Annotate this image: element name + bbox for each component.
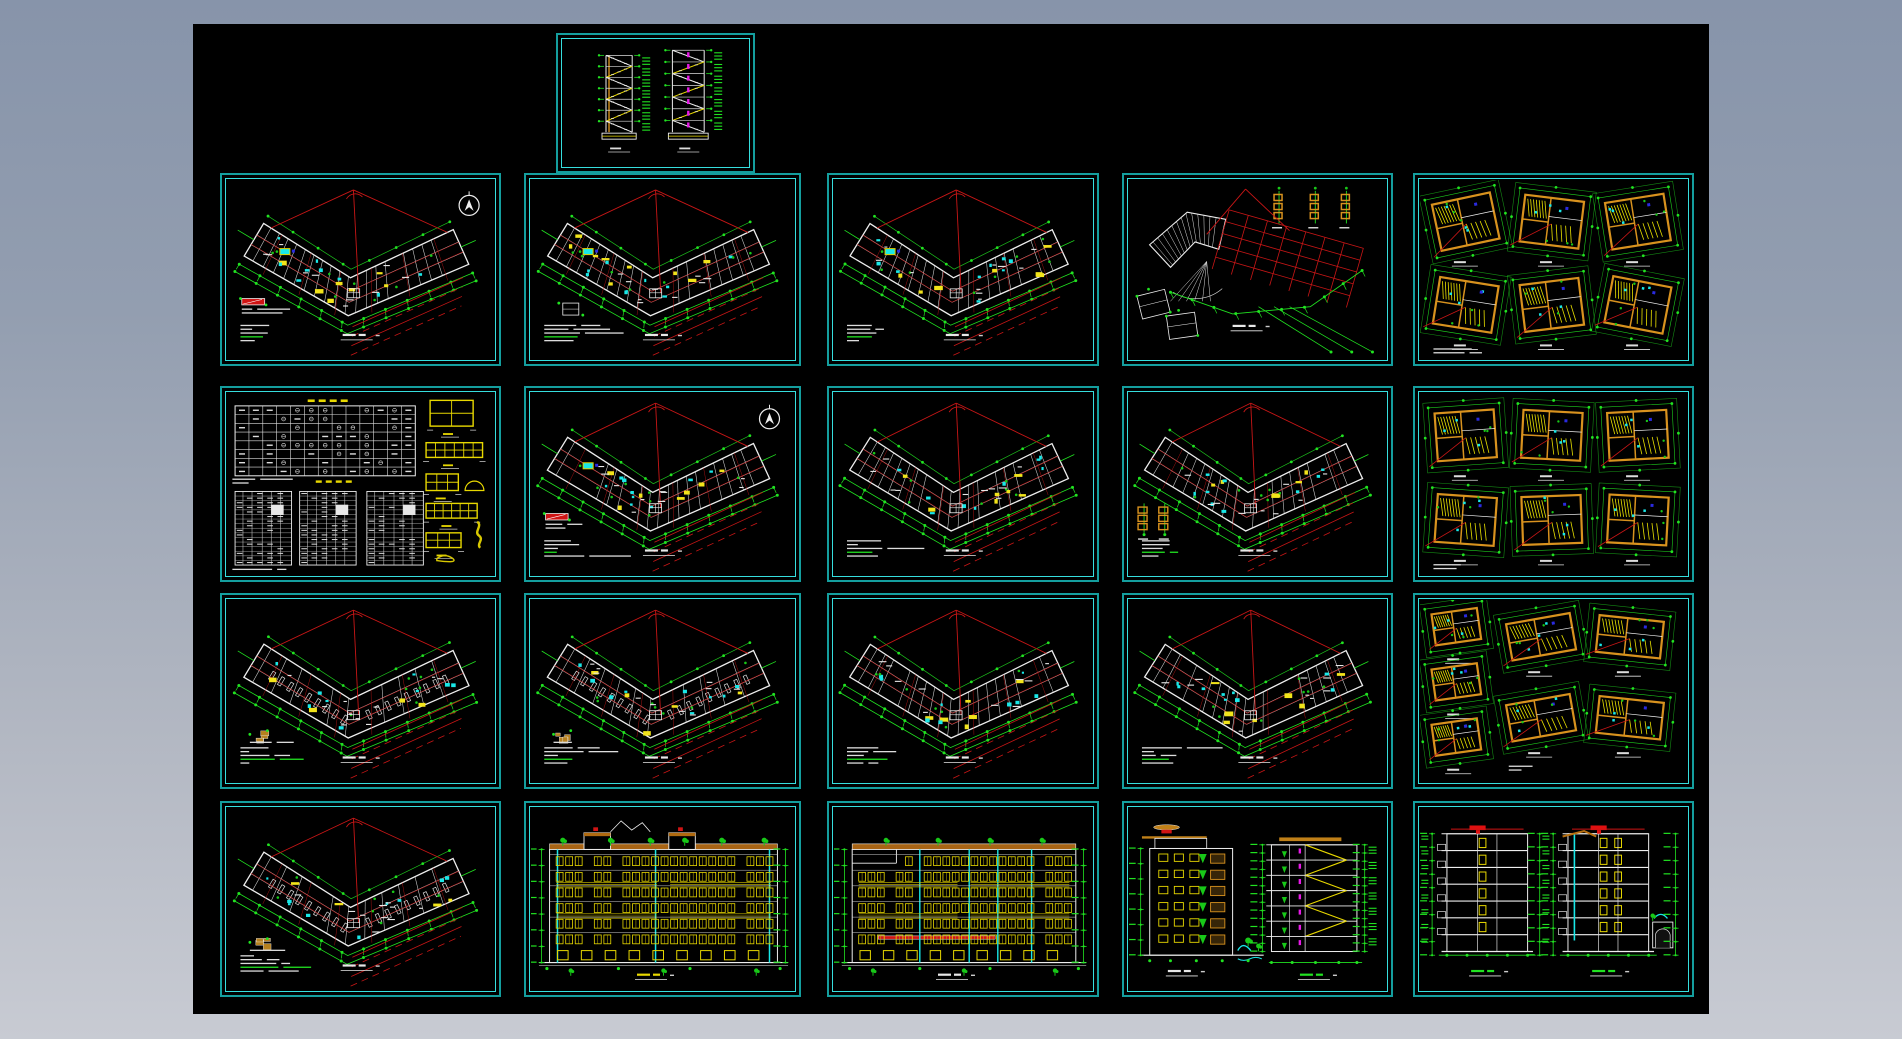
floor-plan-sheet-4-drawing: [531, 393, 796, 577]
roof-plan-sheet-drawing: [1129, 180, 1388, 361]
parking-plan-sheet-1-inner-border: [225, 598, 496, 784]
floor-plan-sheet-4[interactable]: [524, 386, 801, 582]
floor-plan-sheet-6[interactable]: [1122, 386, 1393, 582]
floor-plan-sheet-2[interactable]: [524, 173, 801, 366]
unit-detail-plans-sheet-1[interactable]: [1413, 173, 1694, 366]
floor-plan-sheet-3[interactable]: [827, 173, 1099, 366]
parking-plan-sheet-2[interactable]: [524, 593, 801, 789]
floor-plan-sheet-6-drawing: [1129, 393, 1388, 577]
floor-plan-sheet-1-drawing: [227, 180, 496, 361]
schedule-table-sheet[interactable]: [220, 386, 501, 582]
unit-detail-plans-sheet-2[interactable]: [1413, 386, 1694, 582]
floor-plan-sheet-8-drawing: [1129, 600, 1388, 784]
unit-detail-plans-sheet-1-drawing: [1420, 180, 1689, 361]
front-elevation-sheet[interactable]: [524, 801, 801, 997]
floor-plan-sheet-5-drawing: [834, 393, 1094, 577]
floor-plan-sheet-8[interactable]: [1122, 593, 1393, 789]
parking-plan-sheet-2-drawing: [531, 600, 796, 784]
floor-plan-sheet-5[interactable]: [827, 386, 1099, 582]
unit-detail-plans-sheet-1-inner-border: [1418, 178, 1689, 361]
floor-plan-sheet-3-inner-border: [832, 178, 1094, 361]
stair-sections-sheet-inner-border: [561, 38, 750, 168]
rear-elevation-sheet-drawing: [834, 808, 1094, 992]
schedule-table-sheet-drawing: [227, 393, 496, 577]
floor-plan-sheet-7[interactable]: [827, 593, 1099, 789]
rear-elevation-sheet-inner-border: [832, 806, 1094, 992]
roof-plan-sheet-inner-border: [1127, 178, 1388, 361]
parking-plan-sheet-3-drawing: [227, 808, 496, 992]
image-viewer-background: [0, 0, 1902, 1039]
side-elevation-and-section-sheet[interactable]: [1122, 801, 1393, 997]
unit-detail-plans-sheet-2-inner-border: [1418, 391, 1689, 577]
unit-detail-plans-sheet-3-drawing: [1420, 600, 1689, 784]
floor-plan-sheet-3-drawing: [834, 180, 1094, 361]
floor-plan-sheet-2-inner-border: [529, 178, 796, 361]
floor-plan-sheet-6-inner-border: [1127, 391, 1388, 577]
floor-plan-sheet-1[interactable]: [220, 173, 501, 366]
floor-plan-sheet-4-inner-border: [529, 391, 796, 577]
drawing-canvas[interactable]: [193, 24, 1709, 1014]
roof-plan-sheet[interactable]: [1122, 173, 1393, 366]
floor-plan-sheet-5-inner-border: [832, 391, 1094, 577]
floor-plan-sheet-7-drawing: [834, 600, 1094, 784]
side-elevation-and-section-sheet-inner-border: [1127, 806, 1388, 992]
parking-plan-sheet-1[interactable]: [220, 593, 501, 789]
floor-plan-sheet-7-inner-border: [832, 598, 1094, 784]
front-elevation-sheet-drawing: [531, 808, 796, 992]
parking-plan-sheet-3[interactable]: [220, 801, 501, 997]
parking-plan-sheet-3-inner-border: [225, 806, 496, 992]
unit-detail-plans-sheet-3-inner-border: [1418, 598, 1689, 784]
building-sections-sheet-inner-border: [1418, 806, 1689, 992]
front-elevation-sheet-inner-border: [529, 806, 796, 992]
unit-detail-plans-sheet-3[interactable]: [1413, 593, 1694, 789]
building-sections-sheet-drawing: [1420, 808, 1689, 992]
building-sections-sheet[interactable]: [1413, 801, 1694, 997]
schedule-table-sheet-inner-border: [225, 391, 496, 577]
parking-plan-sheet-1-drawing: [227, 600, 496, 784]
floor-plan-sheet-1-inner-border: [225, 178, 496, 361]
floor-plan-sheet-8-inner-border: [1127, 598, 1388, 784]
floor-plan-sheet-2-drawing: [531, 180, 796, 361]
parking-plan-sheet-2-inner-border: [529, 598, 796, 784]
stair-sections-sheet-drawing: [563, 40, 750, 168]
stair-sections-sheet[interactable]: [556, 33, 755, 173]
side-elevation-and-section-sheet-drawing: [1129, 808, 1388, 992]
unit-detail-plans-sheet-2-drawing: [1420, 393, 1689, 577]
rear-elevation-sheet[interactable]: [827, 801, 1099, 997]
